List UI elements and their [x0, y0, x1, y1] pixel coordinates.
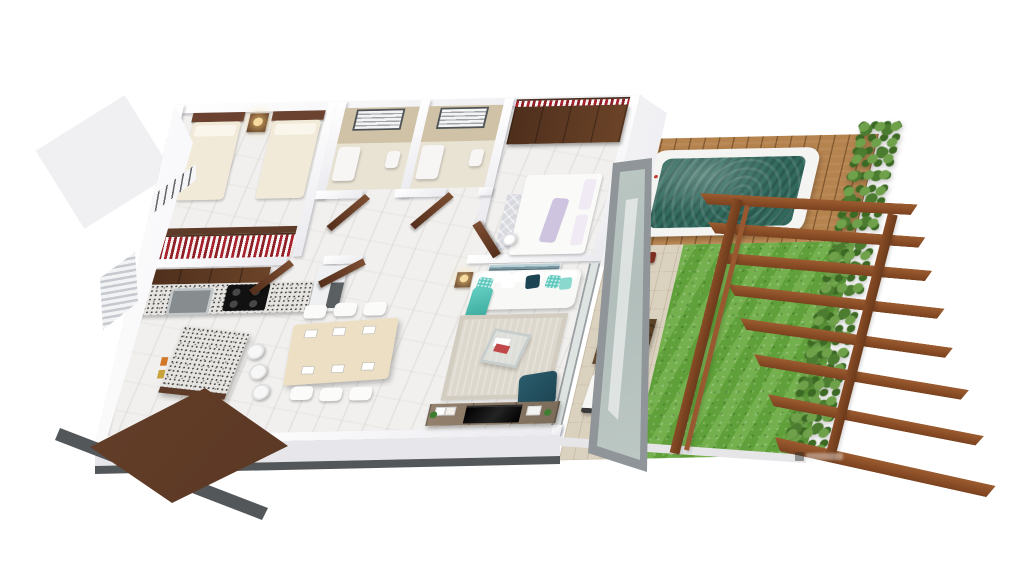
dining-chair — [302, 305, 328, 319]
floor-plan-render — [0, 0, 1024, 576]
dining-chair — [333, 302, 359, 316]
watermark-logo — [795, 451, 843, 462]
place-setting — [303, 329, 318, 338]
louver-window — [352, 109, 405, 131]
dining-chair — [289, 386, 315, 400]
watermark-mark — [795, 452, 804, 461]
wall — [478, 187, 494, 196]
place-setting — [332, 327, 347, 336]
dining-chair — [362, 302, 388, 316]
flat-tv — [463, 405, 523, 424]
louver-window — [436, 107, 489, 129]
red-planter — [634, 252, 657, 263]
place-setting — [360, 362, 375, 371]
wall — [95, 435, 151, 445]
teal-pillow — [525, 274, 540, 289]
lounge-chair — [603, 273, 647, 315]
console-decor — [526, 406, 542, 416]
wall — [394, 188, 447, 198]
wall — [315, 190, 364, 200]
dining-chair — [318, 387, 344, 401]
place-setting — [330, 364, 345, 373]
jacuzzi-water — [647, 156, 807, 229]
dining-chair — [348, 387, 374, 401]
bed-pillow — [273, 123, 317, 135]
kitchen-sink — [165, 288, 214, 316]
place-setting — [300, 366, 315, 375]
watermark-text-blur — [806, 453, 843, 460]
books — [444, 407, 456, 416]
place-setting — [362, 326, 377, 335]
wardrobe — [506, 105, 628, 145]
bed-pillow — [193, 125, 237, 137]
closet-hanging-clothes — [153, 233, 296, 260]
plan-projection — [89, 87, 1012, 471]
